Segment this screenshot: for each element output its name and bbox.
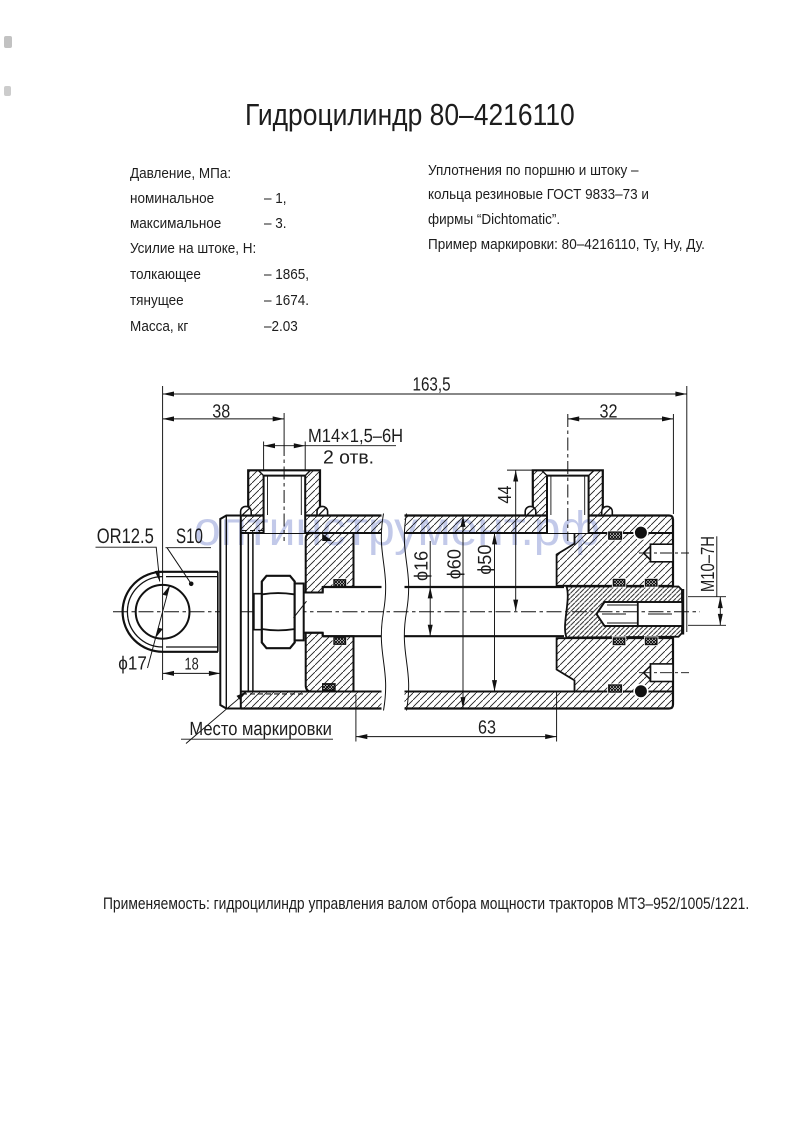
svg-text:18: 18 <box>185 655 199 674</box>
svg-text:М10–7Н: М10–7Н <box>698 536 719 592</box>
svg-text:163,5: 163,5 <box>413 375 451 396</box>
svg-text:32: 32 <box>600 402 618 423</box>
svg-text:38: 38 <box>212 402 230 423</box>
svg-text:OR12.5: OR12.5 <box>97 525 154 548</box>
svg-text:2 отв.: 2 отв. <box>323 448 374 469</box>
svg-text:63: 63 <box>478 718 496 739</box>
svg-text:44: 44 <box>495 485 516 503</box>
svg-text:М14×1,5–6Н: М14×1,5–6Н <box>308 426 403 447</box>
svg-text:ϕ17: ϕ17 <box>118 654 147 675</box>
svg-text:Место маркировки: Место маркировки <box>189 719 331 740</box>
